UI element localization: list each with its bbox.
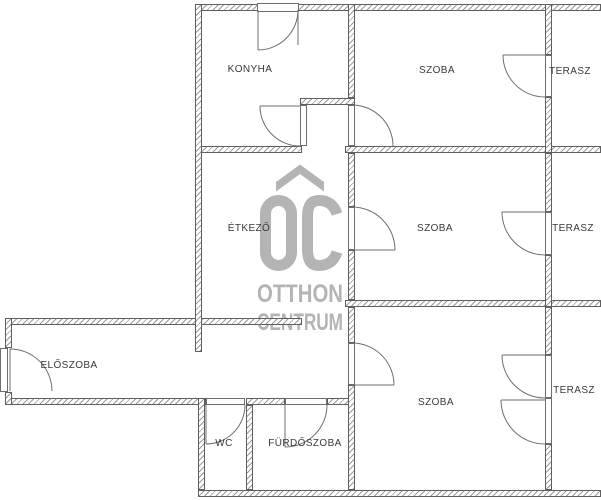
room-label-konyha: KONYHA	[228, 65, 273, 75]
room-label-szoba-bottom: SZOBA	[418, 398, 454, 408]
room-label-szoba-top: SZOBA	[419, 66, 455, 76]
room-label-terasz-middle: TERASZ	[552, 224, 594, 234]
room-label-terasz-top: TERASZ	[549, 67, 591, 77]
room-label-furdoszoba: FÜRDŐSZOBA	[268, 439, 341, 449]
labels-layer: KONYHA SZOBA TERASZ ÉTKEZŐ SZOBA TERASZ …	[0, 0, 601, 500]
room-label-etkezo: ÉTKEZŐ	[228, 224, 270, 234]
room-label-eloszoba: ELŐSZOBA	[40, 361, 97, 371]
floorplan: OTTHON CENTRUM KONYHA SZOBA TERASZ ÉTKEZ…	[0, 0, 601, 500]
room-label-wc: WC	[215, 439, 232, 449]
room-label-szoba-middle: SZOBA	[417, 224, 453, 234]
room-label-terasz-bottom: TERASZ	[553, 386, 595, 396]
